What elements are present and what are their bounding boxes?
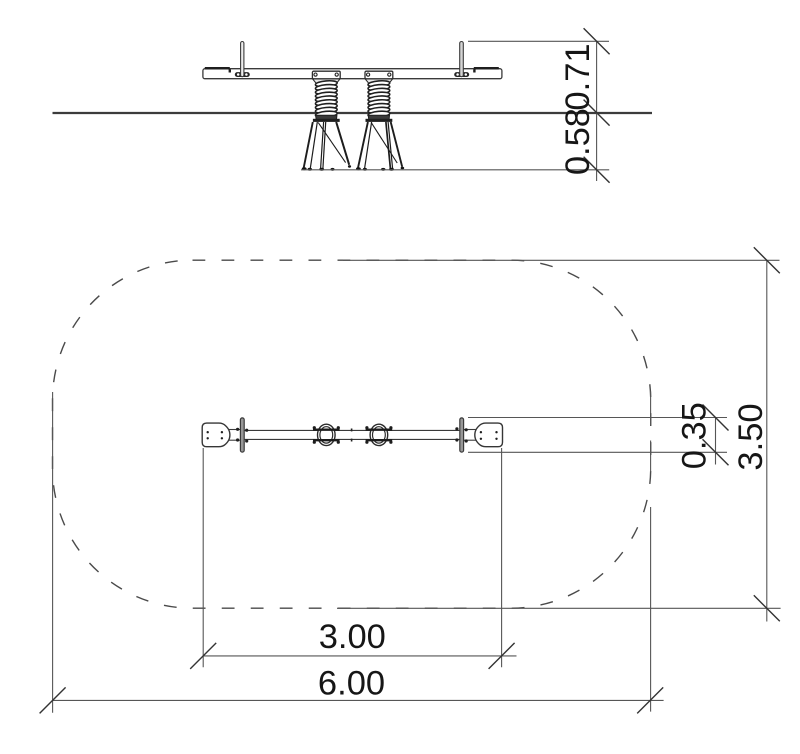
svg-text:0.58: 0.58 bbox=[559, 108, 597, 175]
svg-text:0.35: 0.35 bbox=[676, 402, 714, 469]
svg-text:3.50: 3.50 bbox=[732, 403, 770, 470]
svg-text:6.00: 6.00 bbox=[318, 665, 385, 703]
svg-text:0.71: 0.71 bbox=[559, 43, 597, 110]
svg-text:3.00: 3.00 bbox=[319, 618, 386, 656]
